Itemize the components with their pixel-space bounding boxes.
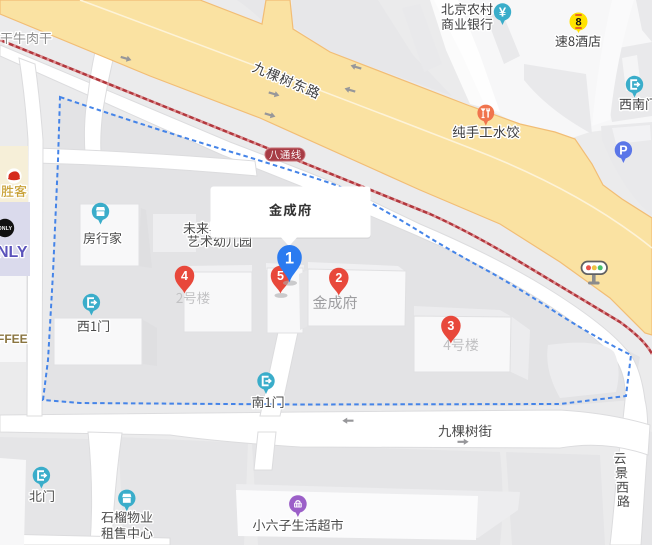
- svg-text:1: 1: [285, 249, 294, 267]
- svg-text:8: 8: [575, 16, 581, 28]
- svg-text:¥: ¥: [499, 5, 507, 20]
- svg-text:P: P: [619, 143, 627, 157]
- svg-text:ONLY: ONLY: [0, 226, 13, 232]
- svg-text:NLY: NLY: [0, 244, 28, 261]
- svg-text:FFEE: FFEE: [0, 332, 28, 346]
- svg-text:3: 3: [447, 319, 454, 333]
- svg-text:4: 4: [181, 269, 188, 283]
- svg-text:2: 2: [335, 271, 342, 285]
